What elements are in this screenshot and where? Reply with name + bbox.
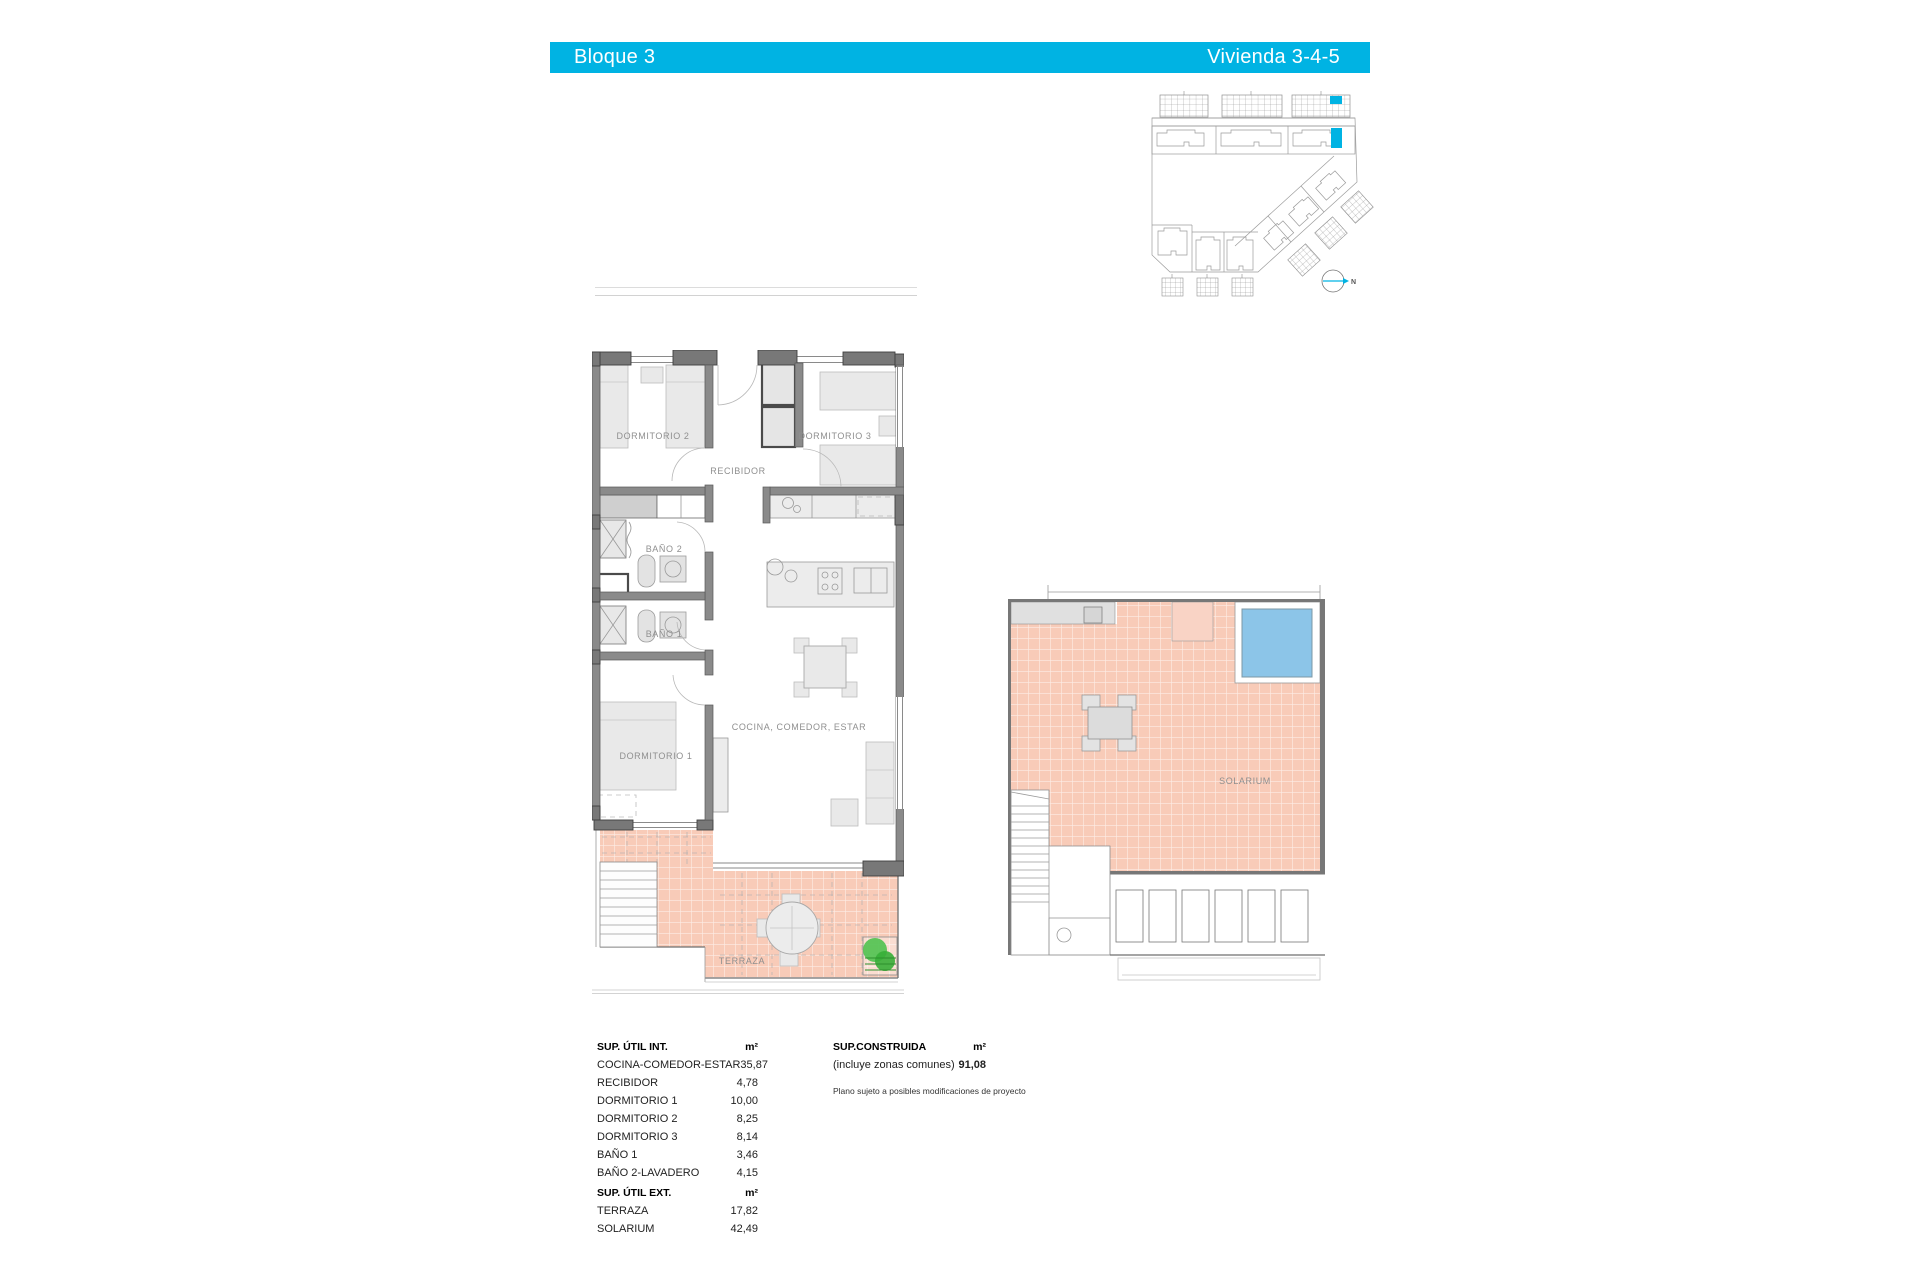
terrace-stairs bbox=[600, 862, 657, 947]
highlighted-roof-cell bbox=[1330, 96, 1342, 104]
terrace: TERRAZA bbox=[592, 830, 904, 994]
table-row: TERRAZA 17,82 bbox=[597, 1202, 758, 1220]
room-label-dormitorio1: DORMITORIO 1 bbox=[619, 751, 692, 761]
row-label: RECIBIDOR bbox=[597, 1074, 658, 1092]
row-value: 17,82 bbox=[730, 1202, 758, 1220]
block-title: Bloque 3 bbox=[574, 46, 655, 69]
ruler-lines bbox=[595, 287, 917, 296]
room-label-solarium: SOLARIUM bbox=[1219, 776, 1271, 786]
row-label: COCINA-COMEDOR-ESTAR bbox=[597, 1056, 740, 1074]
bottom-houses bbox=[1152, 225, 1258, 272]
row-label: SOLARIUM bbox=[597, 1220, 654, 1238]
dimension-line bbox=[1048, 585, 1320, 599]
table-row: COCINA-COMEDOR-ESTAR 35,87 bbox=[597, 1056, 758, 1074]
disclaimer-note: Plano sujeto a posibles modificaciones d… bbox=[833, 1086, 1026, 1096]
unit-header: m² bbox=[973, 1038, 986, 1056]
lower-deck bbox=[1110, 890, 1325, 980]
site-plan: N bbox=[1140, 82, 1400, 320]
row-label: DORMITORIO 1 bbox=[597, 1092, 677, 1110]
row-value: 4,15 bbox=[737, 1164, 758, 1182]
north-compass-icon: N bbox=[1322, 270, 1356, 292]
upper-strip bbox=[1011, 602, 1115, 624]
room-label-dormitorio2: DORMITORIO 2 bbox=[616, 431, 689, 441]
row-value: 35,87 bbox=[740, 1056, 768, 1074]
kitchen-island bbox=[767, 559, 894, 607]
plant-icon bbox=[863, 937, 897, 975]
row-value: 4,78 bbox=[737, 1074, 758, 1092]
table-sup-construida: SUP.CONSTRUIDA m² (incluye zonas comunes… bbox=[833, 1038, 986, 1074]
unit-header: m² bbox=[745, 1184, 758, 1202]
room-label-bano2: BAÑO 2 bbox=[646, 544, 683, 554]
plan-sheet: Bloque 3 Vivienda 3-4-5 bbox=[0, 0, 1920, 1280]
table-row: BAÑO 2-LAVADERO 4,15 bbox=[597, 1164, 758, 1182]
pool bbox=[1235, 602, 1320, 683]
table-row: DORMITORIO 2 8,25 bbox=[597, 1110, 758, 1128]
solarium-plan: SOLARIUM bbox=[1006, 583, 1326, 983]
row-label: BAÑO 1 bbox=[597, 1146, 637, 1164]
row-value: 10,00 bbox=[730, 1092, 758, 1110]
room-label-terraza: TERRAZA bbox=[719, 956, 765, 966]
table-sup-util-ext: SUP. ÚTIL EXT. m² TERRAZA 17,82 SOLARIUM… bbox=[597, 1184, 758, 1238]
row-label: BAÑO 2-LAVADERO bbox=[597, 1164, 699, 1182]
parcel-boundary bbox=[1152, 118, 1357, 272]
row-value: 8,25 bbox=[737, 1110, 758, 1128]
dining-table bbox=[794, 638, 857, 697]
table-title: SUP. ÚTIL EXT. bbox=[597, 1184, 671, 1202]
row-value: 42,49 bbox=[730, 1220, 758, 1238]
table-title: SUP.CONSTRUIDA bbox=[833, 1038, 926, 1056]
table-title: SUP. ÚTIL INT. bbox=[597, 1038, 668, 1056]
table-sup-util-int: SUP. ÚTIL INT. m² COCINA-COMEDOR-ESTAR 3… bbox=[597, 1038, 758, 1182]
row-value: 91,08 bbox=[958, 1056, 986, 1074]
table-row: SOLARIUM 42,49 bbox=[597, 1220, 758, 1238]
walls bbox=[592, 350, 904, 876]
row-value: 8,14 bbox=[737, 1128, 758, 1146]
row-label: TERRAZA bbox=[597, 1202, 648, 1220]
stair-bulkhead bbox=[1172, 602, 1213, 641]
tv-unit bbox=[713, 738, 728, 812]
room-label-bano1: BAÑO 1 bbox=[646, 629, 683, 639]
unit-header: m² bbox=[745, 1038, 758, 1056]
row-label: DORMITORIO 3 bbox=[597, 1128, 677, 1146]
table-row: DORMITORIO 3 8,14 bbox=[597, 1128, 758, 1146]
table-row: (incluye zonas comunes) 91,08 bbox=[833, 1056, 986, 1074]
unit-title: Vivienda 3-4-5 bbox=[1207, 46, 1340, 69]
table-row: RECIBIDOR 4,78 bbox=[597, 1074, 758, 1092]
roof-panel-arrays bbox=[1160, 91, 1350, 117]
building-row bbox=[1152, 118, 1355, 154]
row-value: 3,46 bbox=[737, 1146, 758, 1164]
sofa bbox=[831, 742, 894, 826]
room-label-cocina: COCINA, COMEDOR, ESTAR bbox=[732, 722, 867, 732]
highlighted-unit bbox=[1331, 128, 1342, 148]
room-label-dormitorio3: DORMITORIO 3 bbox=[798, 431, 871, 441]
row-label: DORMITORIO 2 bbox=[597, 1110, 677, 1128]
room-label-recibidor: RECIBIDOR bbox=[710, 466, 765, 476]
title-bar: Bloque 3 Vivienda 3-4-5 bbox=[550, 42, 1370, 73]
bottom-pergolas bbox=[1162, 274, 1253, 296]
table-row: BAÑO 1 3,46 bbox=[597, 1146, 758, 1164]
table-row: DORMITORIO 1 10,00 bbox=[597, 1092, 758, 1110]
north-label: N bbox=[1351, 279, 1356, 286]
row-label: (incluye zonas comunes) bbox=[833, 1056, 955, 1074]
floor-plan: TERRAZA bbox=[592, 350, 904, 998]
